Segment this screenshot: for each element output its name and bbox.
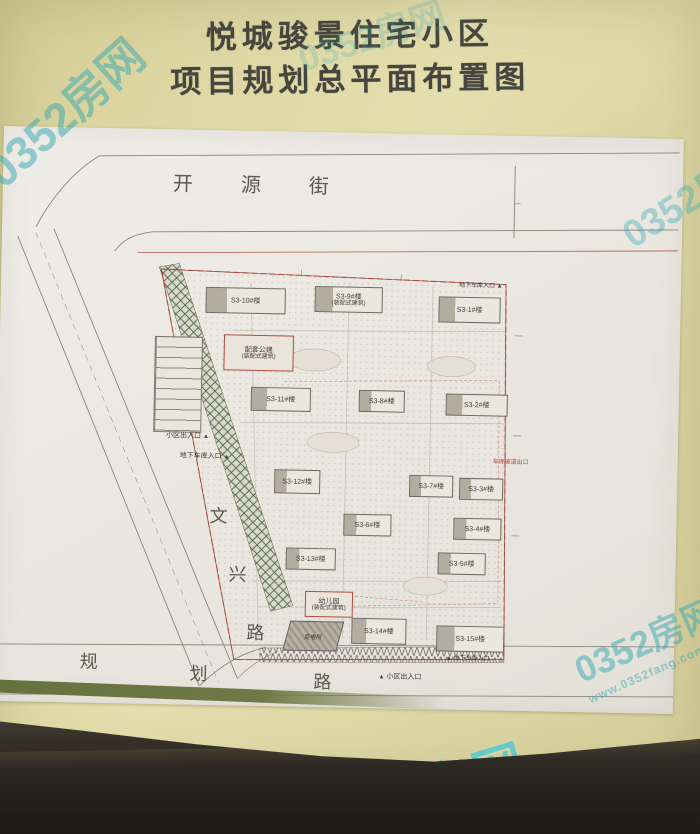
poster-paper: 悦城骏景住宅小区 项目规划总平面布置图 [0, 0, 700, 775]
facility-substation: 变电所 [282, 621, 344, 652]
entrance-arrow-icon: ▲ [497, 283, 503, 289]
building-s3-7: S3-7#楼 [409, 475, 453, 498]
building-s3-12: S3-12#楼 [274, 469, 320, 494]
street-guihua-lu-char2: 划 [189, 660, 207, 686]
street-wenxing-lu-char1: 文 [209, 502, 227, 528]
street-kaiyuan-jie: 开源街 [173, 173, 377, 199]
entrance-arrow-icon: ▲ [378, 674, 384, 680]
entrance-west-main: 小区出入口 ▲ [166, 432, 209, 441]
entrance-south-main: ▲ 小区出入口 [378, 673, 421, 682]
poster-title: 悦城骏景住宅小区 项目规划总平面布置图 [0, 9, 700, 107]
building-s3-9: S3-9#楼(装配式建筑) [314, 286, 382, 313]
entrance-north-garage: 地下车库入口 ▲ [459, 283, 503, 290]
building-s3-10: S3-10#楼 [205, 287, 285, 315]
facility-public-building: 配套公建 (装配式建筑) [223, 334, 294, 371]
building-s3-15: S3-15#楼 [436, 625, 504, 652]
entrance-south-garage: ▲ 地下车库入口 [446, 656, 490, 663]
building-s3-14: S3-14#楼 [351, 618, 406, 645]
building-s3-8: S3-8#楼 [359, 390, 405, 413]
street-wenxing-lu-char3: 路 [246, 619, 264, 645]
building-s3-5: S3-5#楼 [437, 552, 485, 575]
road-red-line [138, 241, 678, 263]
entrance-west-garage: 地下车库入口 ▲ [180, 452, 230, 461]
building-s3-6: S3-6#楼 [343, 514, 391, 537]
building-s3-2: S3-2#楼 [446, 394, 508, 417]
entrance-arrow-icon: ▲ [203, 434, 209, 440]
facility-kindergarten: 幼儿园 (装配式建筑) [305, 591, 353, 618]
technical-indicator-table [153, 336, 203, 433]
street-guihua-lu-char1: 规 [80, 648, 98, 674]
building-s3-3: S3-3#楼 [459, 478, 503, 501]
entrance-arrow-icon: ▲ [446, 656, 452, 662]
building-s3-1: S3-1#楼 [438, 296, 500, 323]
building-s3-4: S3-4#楼 [453, 518, 501, 541]
garage-ramp-exit-label: 车库坡道出口 [493, 459, 529, 466]
entrance-arrow-icon: ▲ [224, 454, 230, 460]
building-s3-13: S3-13#楼 [286, 547, 336, 570]
street-guihua-lu-char3: 路 [313, 668, 331, 694]
photo-of-site-plan-poster: 悦城骏景住宅小区 项目规划总平面布置图 [0, 0, 700, 834]
site-plan-sheet: 开源街 文 兴 路 规 划 路 S3-10#楼 S3-9#楼(装配式建筑) S3… [0, 126, 684, 714]
street-wenxing-lu-char2: 兴 [228, 560, 246, 586]
building-s3-11: S3-11#楼 [251, 387, 311, 412]
